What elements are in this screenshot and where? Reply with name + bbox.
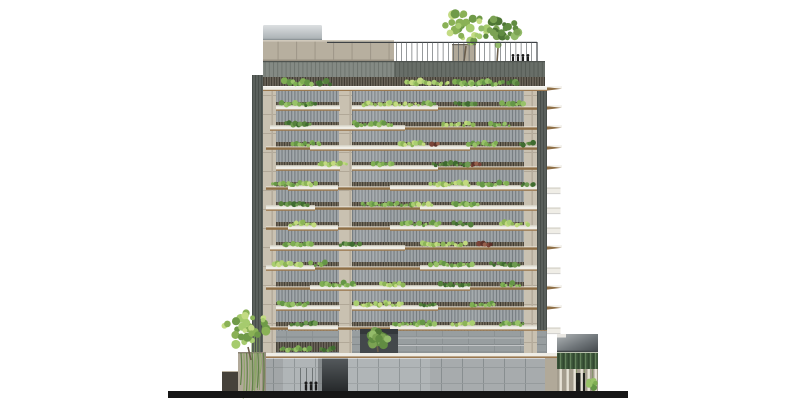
roof-person: [527, 54, 530, 62]
glass-sliver: [537, 91, 547, 330]
roof-person: [517, 54, 520, 62]
architectural-elevation: [0, 0, 800, 400]
ground-line: [168, 391, 628, 398]
annex-person: [577, 382, 580, 391]
roof-person: [512, 54, 515, 62]
lobby-person: [314, 382, 317, 391]
lobby-person: [304, 382, 307, 391]
lobby-person: [309, 382, 312, 391]
balcony-planting: [521, 182, 536, 187]
top-floor-band: [263, 61, 562, 91]
glass-sliver: [252, 75, 263, 352]
tower-facade: [252, 75, 562, 353]
roof-person: [522, 54, 525, 62]
elevation-drawing: [0, 0, 800, 400]
podium: [263, 327, 566, 391]
